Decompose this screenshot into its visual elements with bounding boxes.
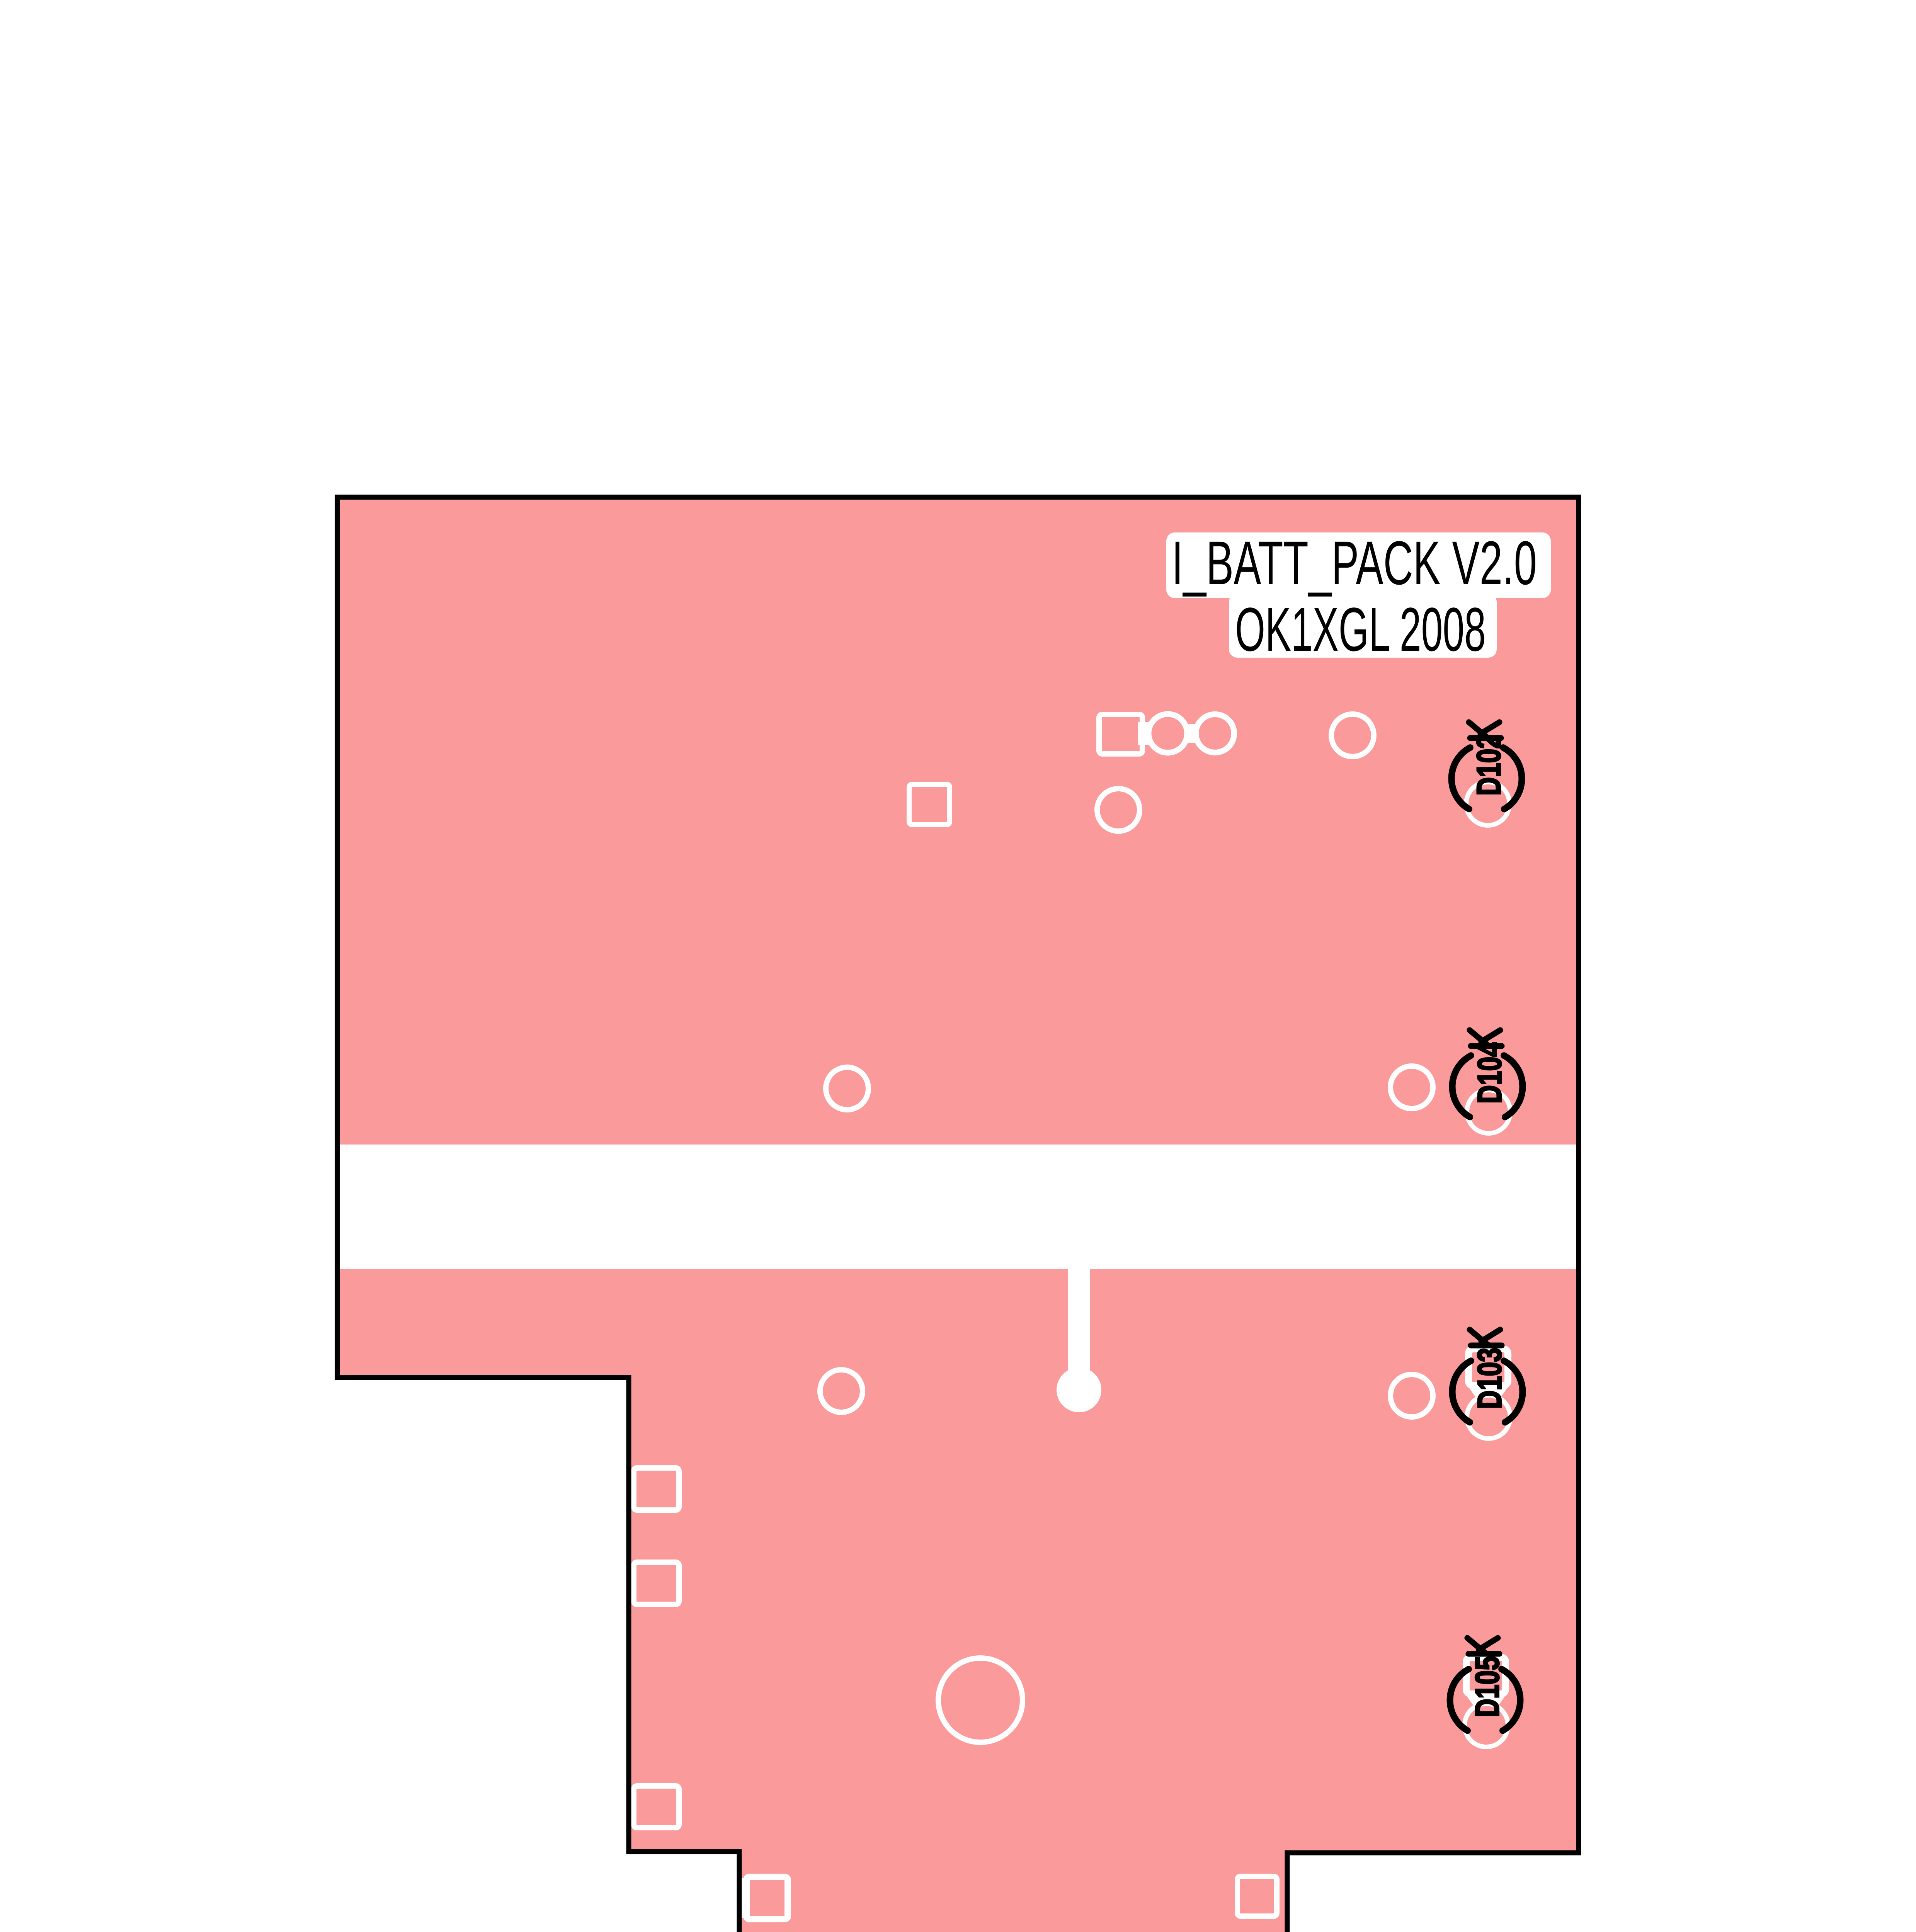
svg-text:OK1XGL 2008: OK1XGL 2008 [1235,595,1486,664]
svg-text:D103: D103 [1471,1348,1508,1409]
svg-text:D105: D105 [1469,1656,1506,1717]
svg-text:I_BATT_PACK V2.0: I_BATT_PACK V2.0 [1172,528,1537,597]
svg-text:D104: D104 [1471,1043,1508,1104]
svg-text:D102: D102 [1470,735,1508,796]
